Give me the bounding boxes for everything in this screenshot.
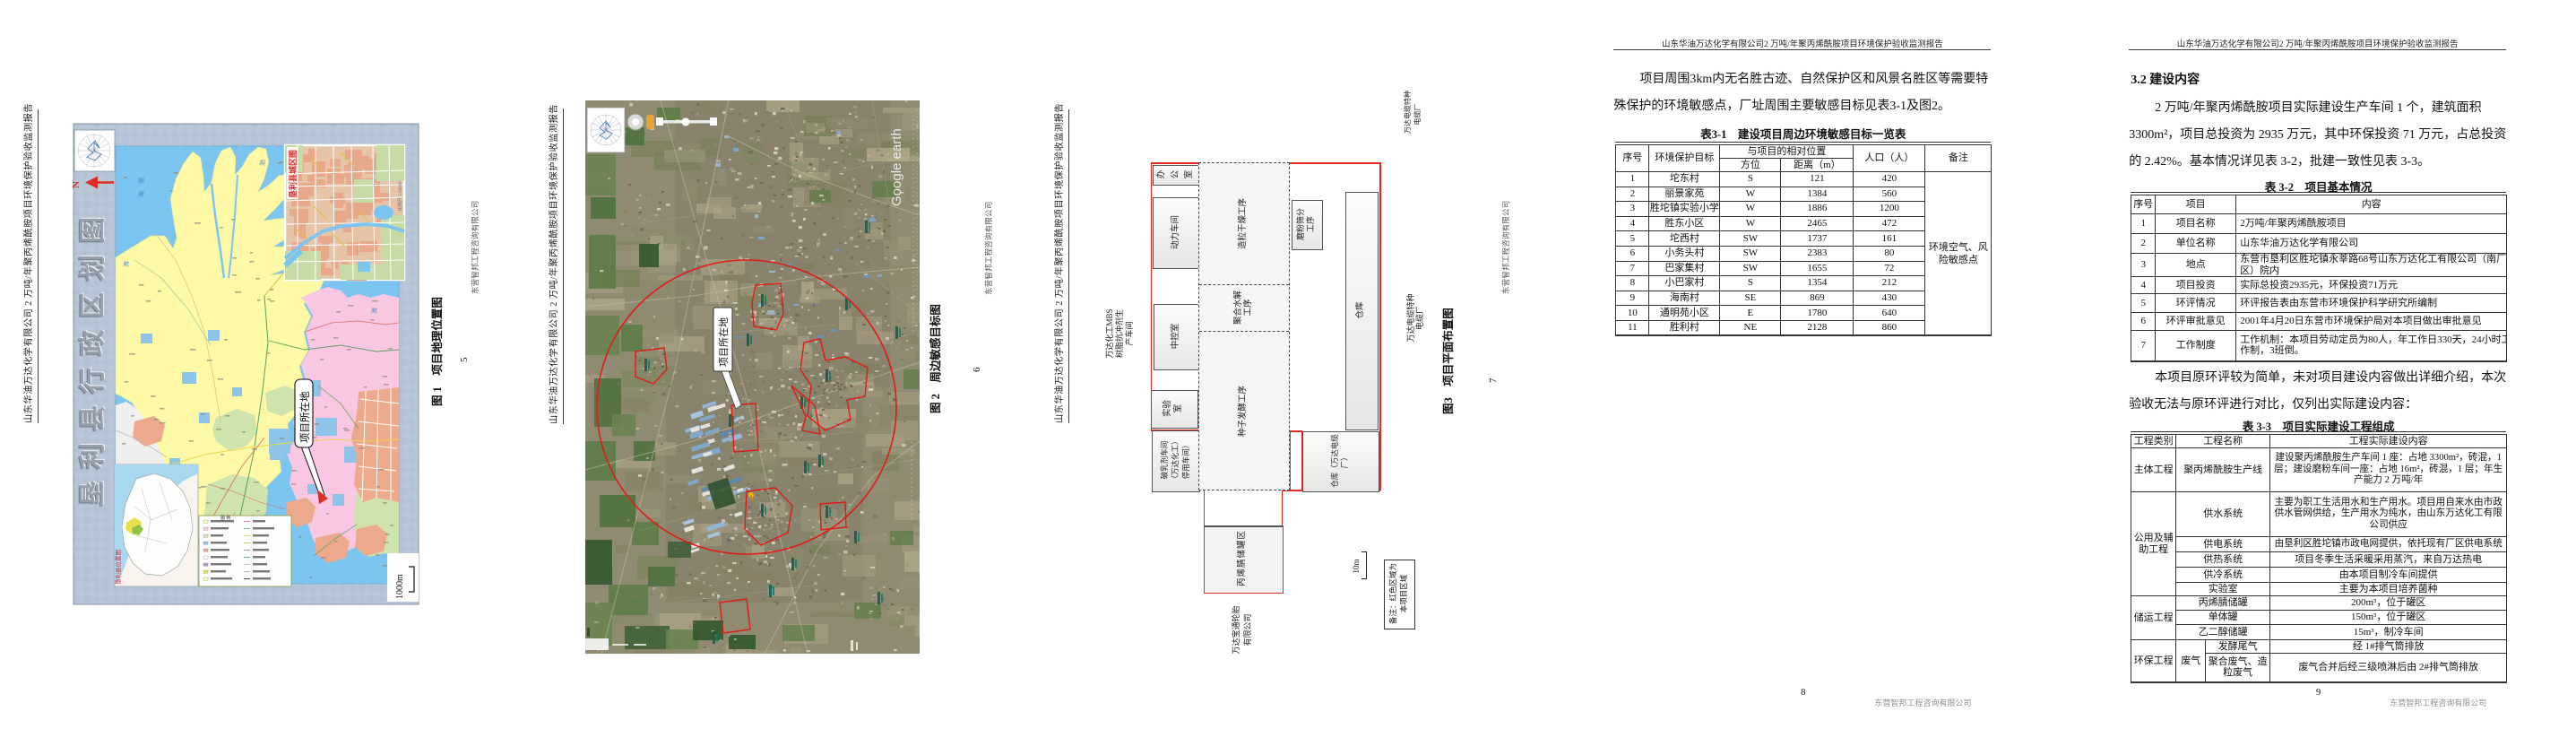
svg-text:项目所在地: 项目所在地 [299, 391, 311, 443]
svg-text:垦利县位置图: 垦利县位置图 [114, 550, 122, 585]
svg-text:海: 海 [122, 261, 130, 267]
svg-text:海: 海 [137, 191, 145, 197]
svg-text:图 例: 图 例 [220, 515, 230, 521]
svg-text:项目所在地: 项目所在地 [718, 317, 730, 367]
svg-text:垦利县城区图: 垦利县城区图 [288, 150, 298, 198]
svg-text:Google earth: Google earth [889, 128, 904, 206]
svg-text:海: 海 [370, 308, 378, 314]
svg-text:N: N [71, 181, 82, 188]
svg-text:比例尺 1:50000: 比例尺 1:50000 [397, 181, 403, 211]
svg-text:1000m: 1000m [395, 574, 405, 599]
svg-text:渤: 渤 [137, 178, 145, 184]
svg-text:渤: 渤 [258, 160, 266, 166]
